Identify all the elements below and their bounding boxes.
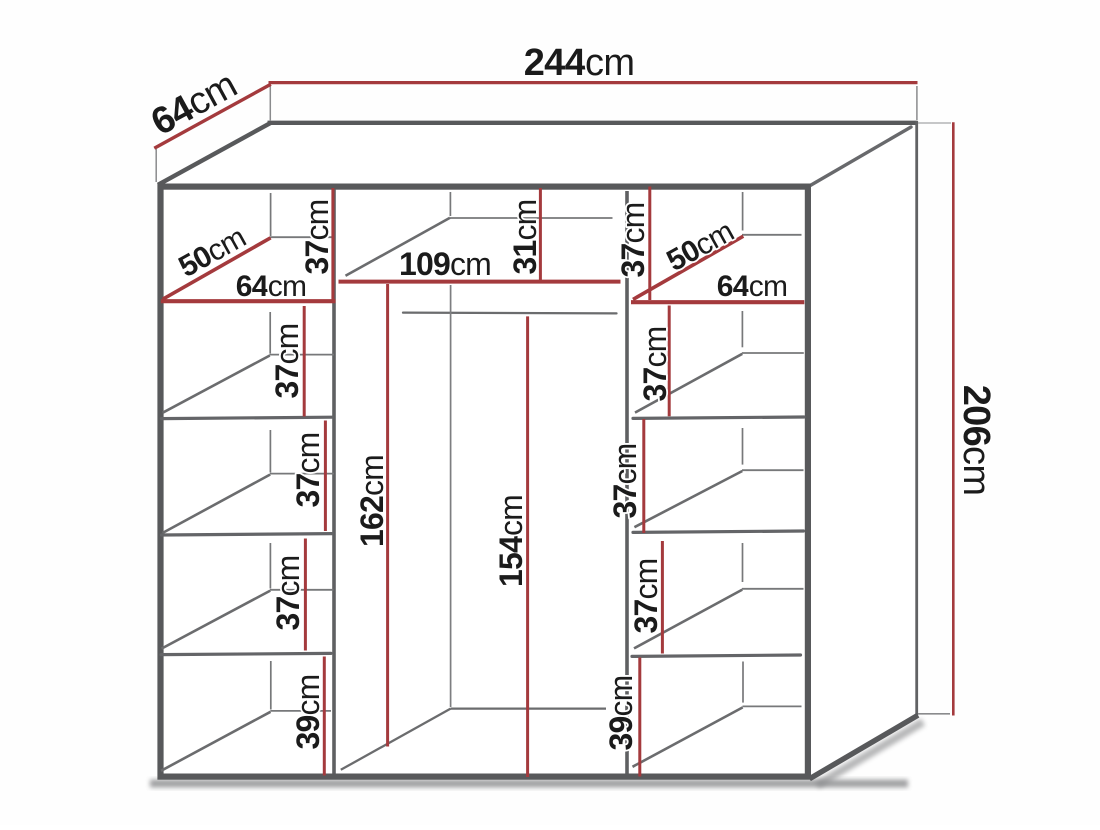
- svg-text:37cm: 37cm: [607, 443, 643, 518]
- svg-text:37cm: 37cm: [637, 326, 673, 401]
- svg-text:206cm: 206cm: [955, 385, 997, 496]
- svg-text:37cm: 37cm: [269, 323, 305, 398]
- svg-text:154cm: 154cm: [493, 495, 529, 587]
- svg-text:37cm: 37cm: [270, 555, 306, 630]
- svg-text:37cm: 37cm: [299, 199, 335, 274]
- svg-text:39cm: 39cm: [290, 674, 326, 749]
- svg-text:64cm: 64cm: [717, 270, 788, 303]
- svg-text:37cm: 37cm: [615, 202, 651, 277]
- svg-text:37cm: 37cm: [290, 432, 326, 507]
- svg-text:37cm: 37cm: [628, 558, 664, 633]
- svg-text:64cm: 64cm: [236, 270, 307, 303]
- svg-text:162cm: 162cm: [354, 455, 390, 547]
- svg-text:31cm: 31cm: [507, 199, 543, 274]
- svg-text:109cm: 109cm: [399, 246, 491, 282]
- svg-text:39cm: 39cm: [603, 675, 639, 750]
- svg-text:244cm: 244cm: [524, 42, 635, 84]
